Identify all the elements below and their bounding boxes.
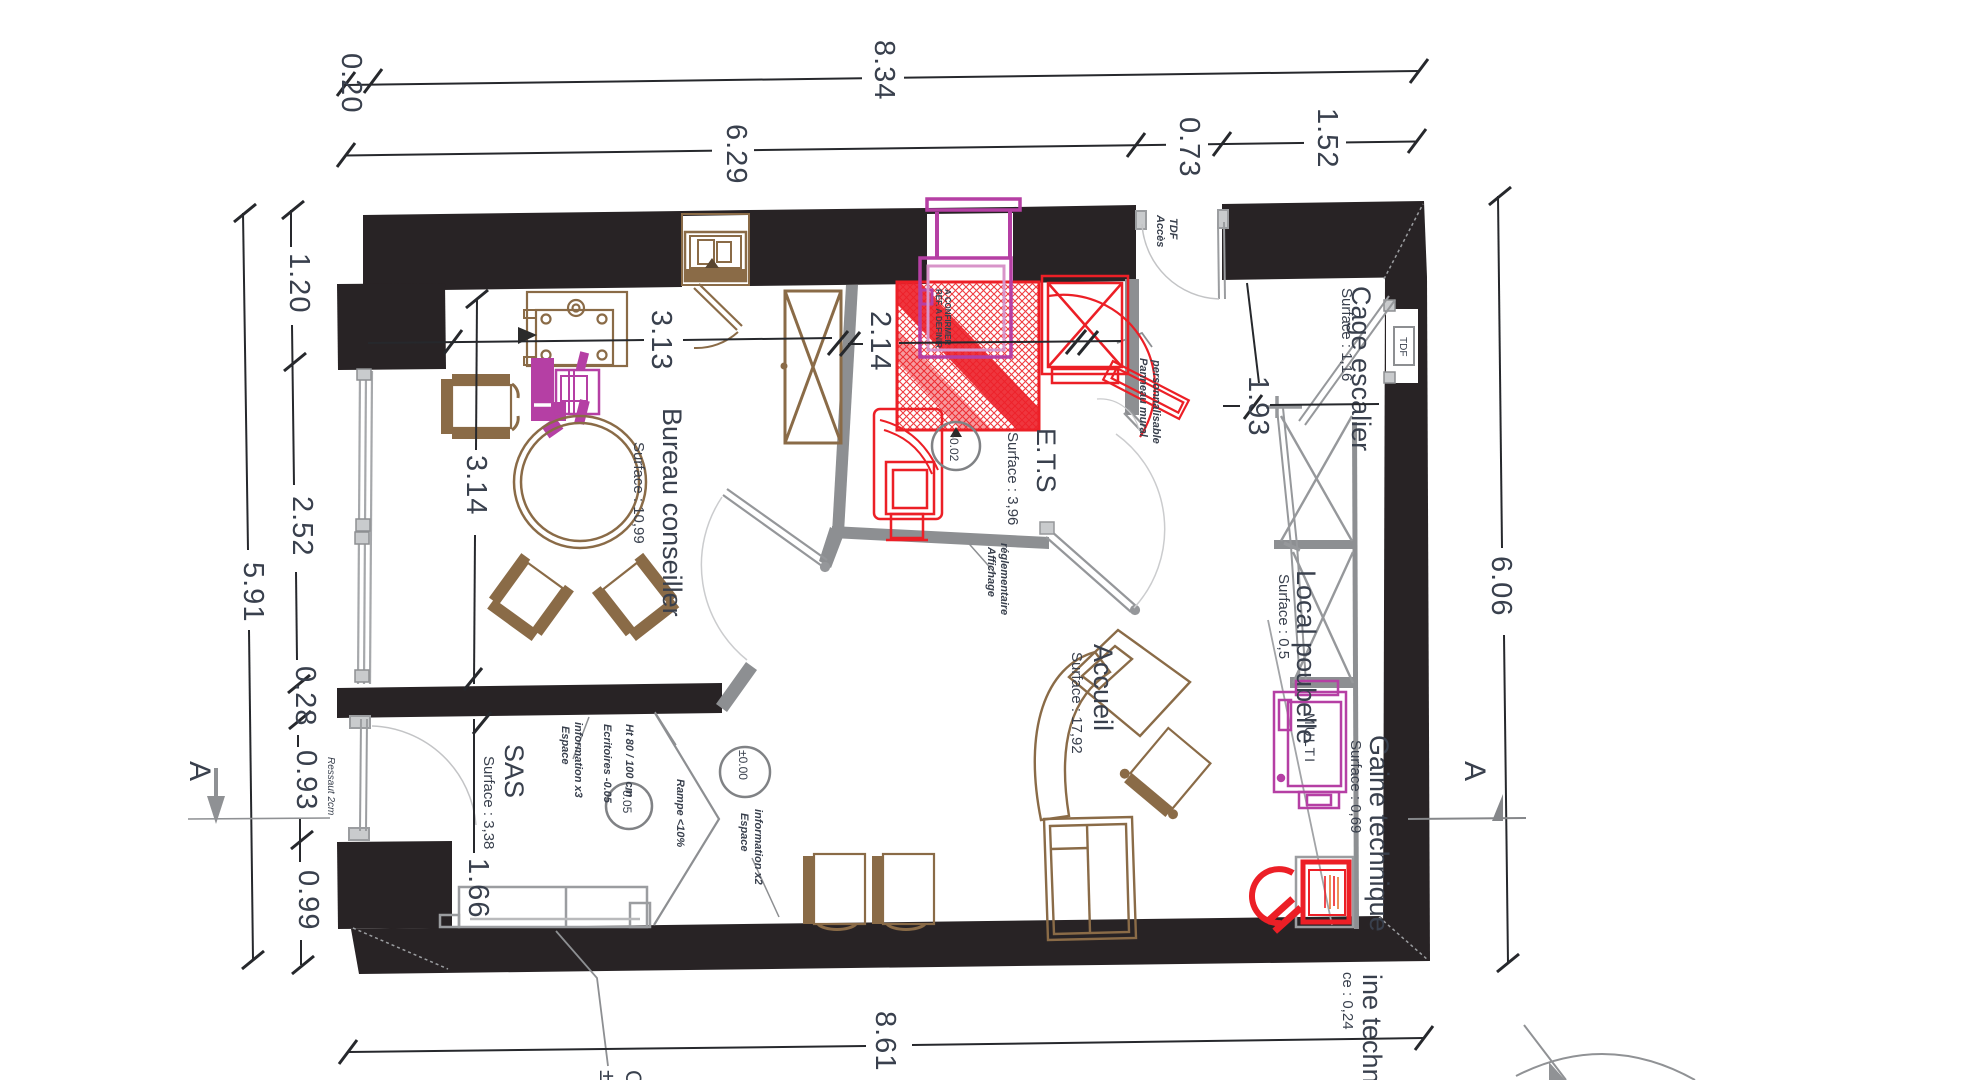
svg-text:personnalisable: personnalisable [1150, 359, 1162, 444]
svg-text:TDF: TDF [1397, 337, 1408, 356]
svg-text:Surface : 0,69: Surface : 0,69 [1347, 740, 1364, 833]
svg-text:8.34: 8.34 [868, 40, 900, 100]
svg-text:Surface : 3,38: Surface : 3,38 [480, 756, 497, 849]
svg-text:Espace: Espace [738, 813, 750, 852]
svg-text:±0,00: ±0,00 [595, 1070, 620, 1080]
svg-text:ce : 0,24: ce : 0,24 [1339, 972, 1356, 1030]
svg-text:Surface : 17,92: Surface : 17,92 [1068, 652, 1085, 754]
svg-text:réglementaire: réglementaire [998, 543, 1010, 615]
svg-text:0.28: 0.28 [289, 666, 321, 726]
svg-text:A: A [1458, 761, 1491, 781]
svg-text:0.20: 0.20 [335, 53, 367, 113]
svg-text:information x3: information x3 [572, 722, 584, 798]
svg-text:Espace: Espace [559, 726, 571, 765]
svg-text:-0.02: -0.02 [947, 434, 961, 462]
svg-text:0.73: 0.73 [1173, 117, 1205, 177]
svg-text:Accès: Accès [1154, 214, 1166, 247]
svg-text:Local poubelle: Local poubelle [1291, 570, 1321, 744]
svg-text:Rampe <10%: Rampe <10% [674, 779, 686, 847]
svg-text:6.06: 6.06 [1485, 556, 1517, 616]
svg-text:ine techniq: ine techniq [1357, 974, 1387, 1080]
svg-text:2.14: 2.14 [864, 311, 896, 371]
svg-text:0.93: 0.93 [290, 750, 322, 810]
svg-text:6.29: 6.29 [720, 124, 752, 184]
svg-text:Surface : 1,16: Surface : 1,16 [1338, 288, 1355, 381]
svg-text:SAS: SAS [499, 744, 529, 798]
svg-text:3.14: 3.14 [460, 455, 492, 515]
svg-text:E.T.S: E.T.S [1031, 428, 1061, 493]
svg-text:0.99: 0.99 [292, 870, 324, 930]
svg-text:Carrelage: Carrelage [621, 1070, 646, 1080]
svg-text:information x2: information x2 [752, 809, 764, 885]
svg-text:1.52: 1.52 [1311, 108, 1343, 168]
svg-text:8.61: 8.61 [869, 1011, 901, 1071]
svg-text:3.13: 3.13 [645, 310, 677, 370]
svg-text:Surface : 0,5: Surface : 0,5 [1275, 574, 1292, 659]
svg-text:Ht 80 / 100 cm: Ht 80 / 100 cm [623, 724, 635, 798]
svg-text:Affichage: Affichage [985, 546, 997, 597]
svg-text:Panneau mural: Panneau mural [1137, 358, 1149, 438]
svg-text:2.52: 2.52 [286, 496, 318, 556]
svg-text:Gaine technique: Gaine technique [1364, 735, 1394, 932]
svg-text:1.93: 1.93 [1242, 376, 1274, 436]
svg-text:Bureau conseiller: Bureau conseiller [657, 408, 687, 617]
svg-text:1.20: 1.20 [283, 253, 315, 313]
svg-text:±0.00: ±0.00 [736, 750, 750, 780]
svg-text:Surface : 3,96: Surface : 3,96 [1004, 432, 1021, 525]
svg-text:1.66: 1.66 [462, 858, 494, 918]
svg-text:5.91: 5.91 [237, 562, 269, 622]
svg-text:Surface : 10,99: Surface : 10,99 [630, 442, 647, 544]
svg-text:Ecritoires -0.05: Ecritoires -0.05 [601, 724, 613, 804]
svg-text:A CONFIRMER: A CONFIRMER [943, 289, 952, 345]
svg-text:REF. A DEFINIR: REF. A DEFINIR [934, 289, 943, 348]
svg-text:TDF: TDF [1167, 218, 1179, 240]
svg-text:A: A [183, 761, 216, 781]
svg-text:Accueil: Accueil [1088, 644, 1118, 731]
svg-text:Ressaut 2cm: Ressaut 2cm [325, 757, 336, 815]
